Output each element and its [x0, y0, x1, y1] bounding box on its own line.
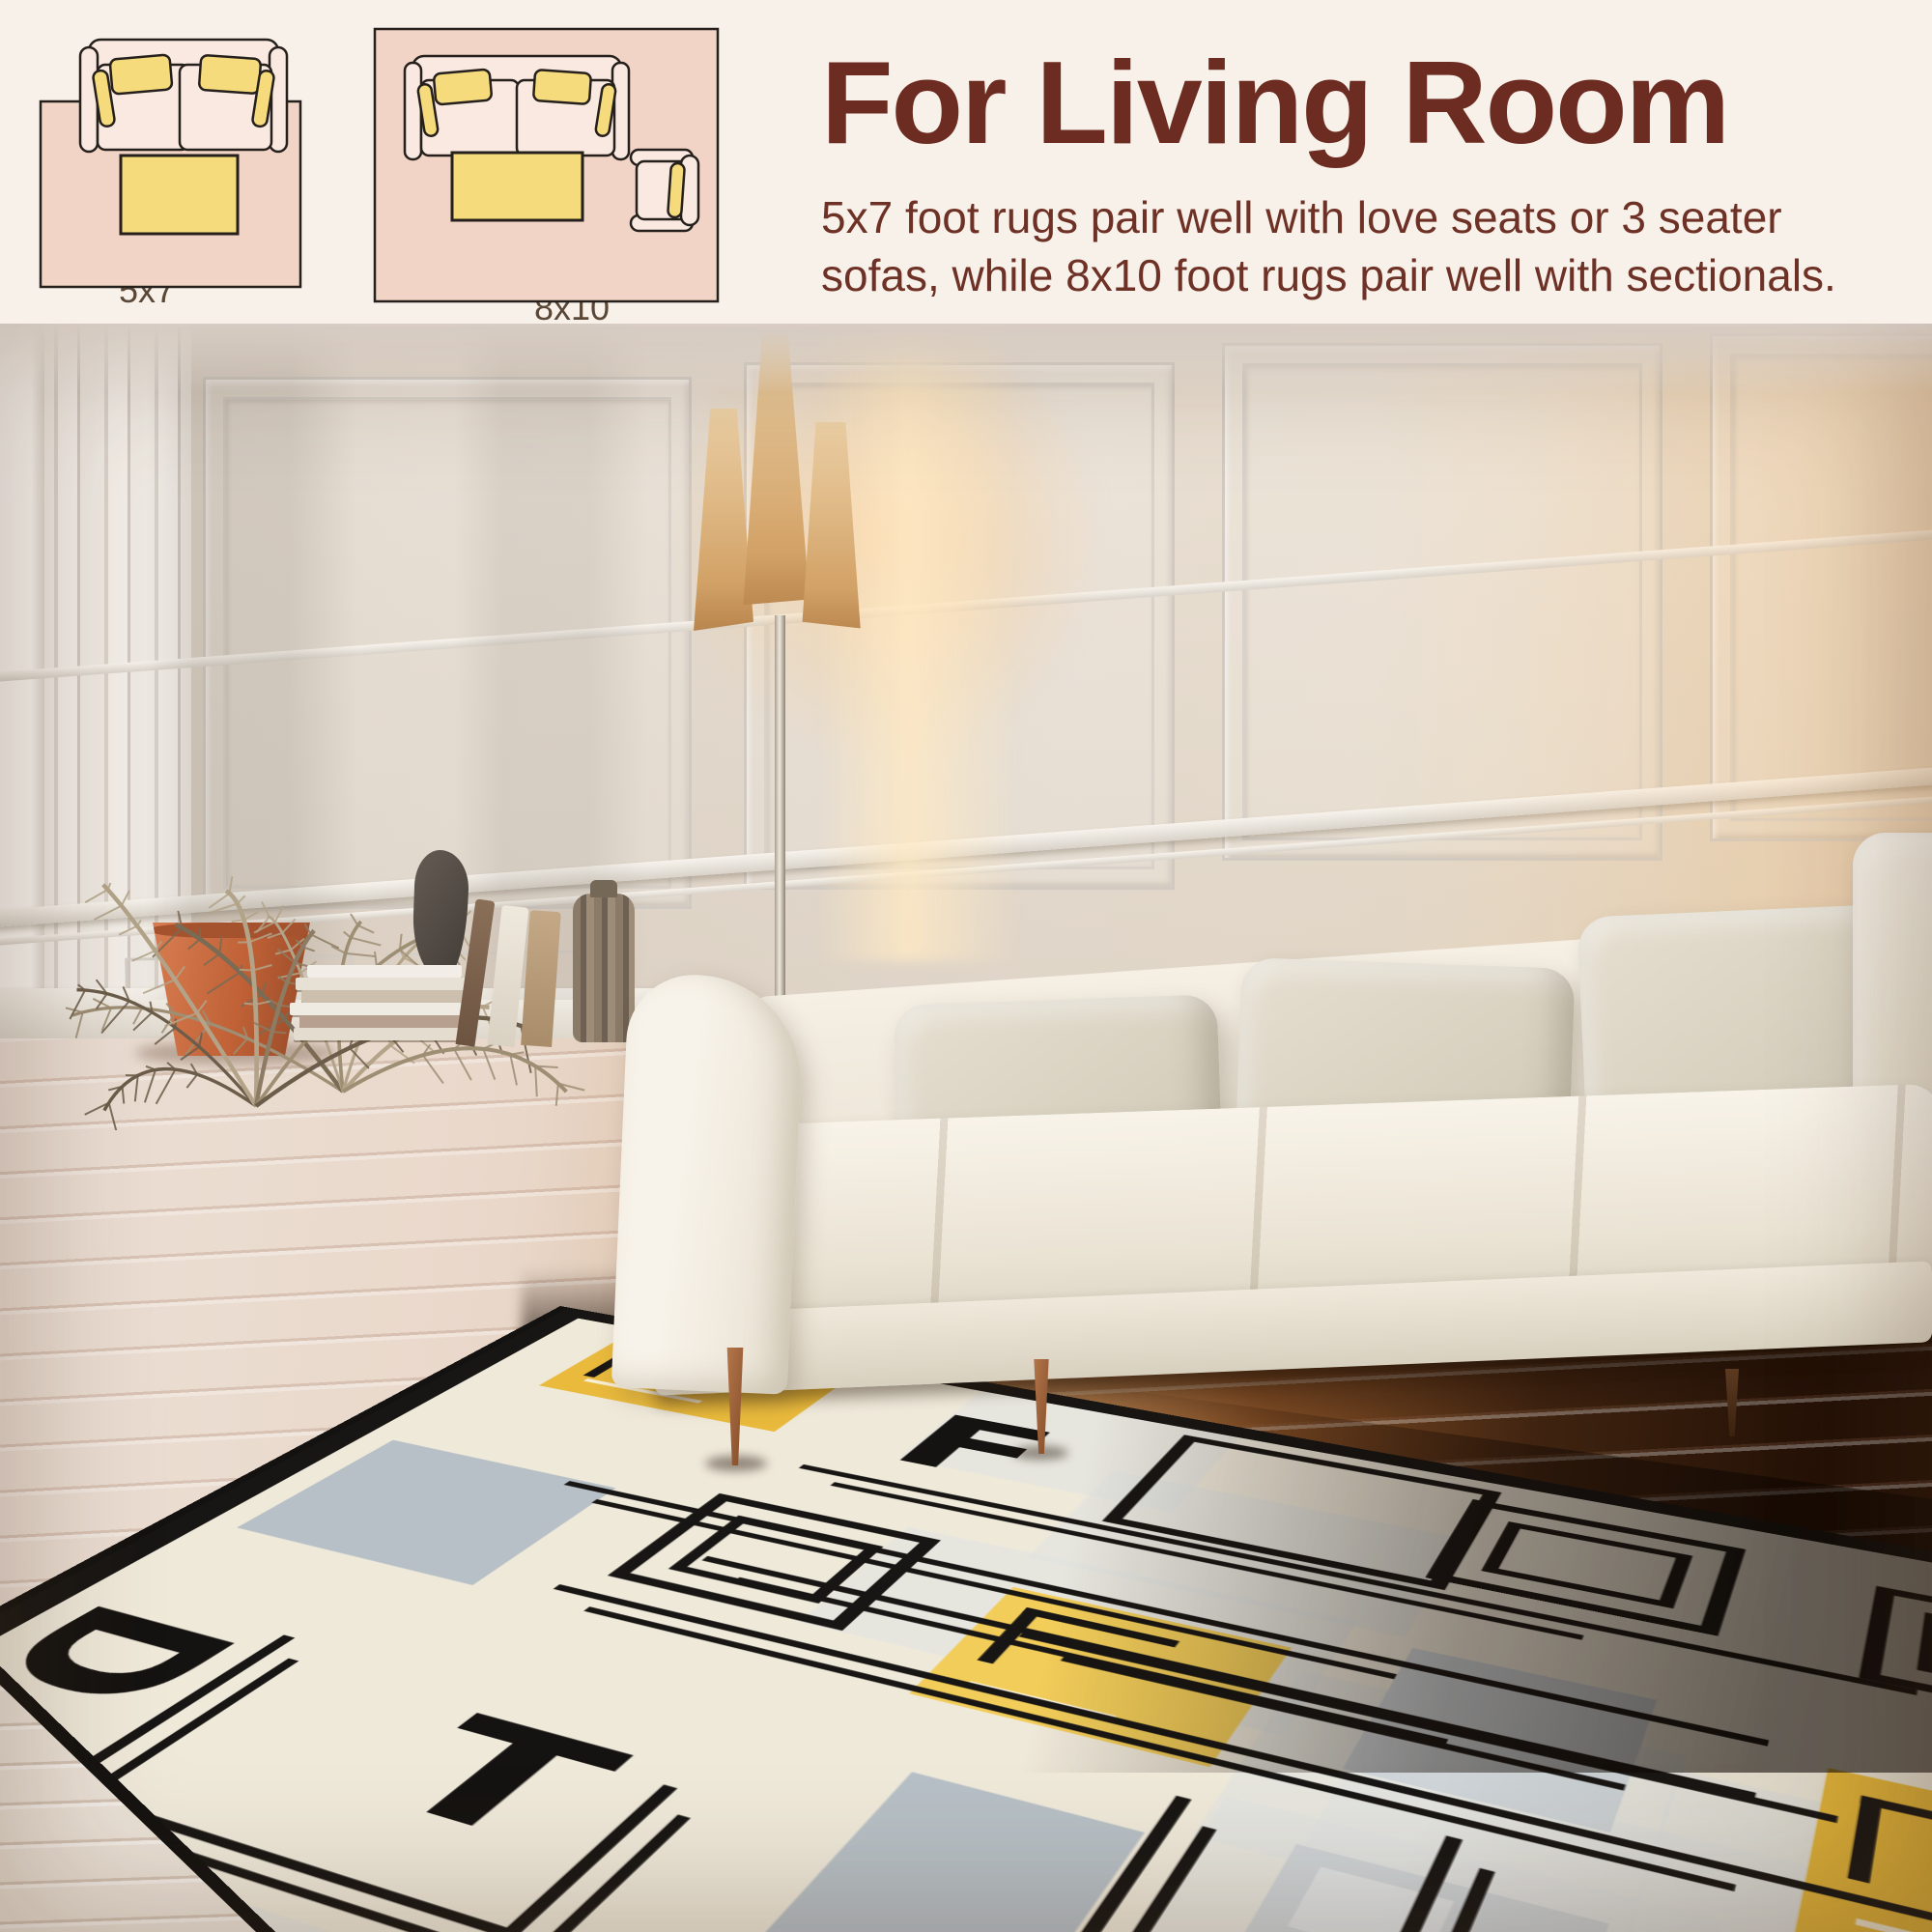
diagram-coffee-table: [452, 153, 582, 220]
diagram-8x10: [375, 29, 718, 301]
living-room-photo: FDDTTJ: [0, 324, 1932, 1932]
diagram-coffee-table: [121, 156, 238, 234]
book-stack: [290, 965, 483, 1044]
diagram-5x7: [41, 40, 300, 287]
product-infographic: 5x7 8x10 For Living Room 5x7 foot rugs p…: [0, 0, 1932, 1932]
description-line-2: sofas, while 8x10 foot rugs pair well wi…: [821, 247, 1932, 305]
lamp-pole: [775, 615, 785, 1002]
rug-size-diagrams: [0, 0, 773, 343]
page-title: For Living Room: [821, 41, 1932, 164]
wall-panel: [1222, 343, 1662, 861]
copy-block: For Living Room 5x7 foot rugs pair well …: [821, 27, 1932, 305]
vase: [573, 894, 635, 1042]
description-line-1: 5x7 foot rugs pair well with love seats …: [821, 189, 1932, 247]
diagram-sofa-topview: [405, 56, 629, 159]
diagram-sofa-topview: [80, 40, 287, 152]
sofa-armrest: [611, 972, 806, 1395]
wall-panel: [1710, 333, 1932, 841]
lamp-shade: [800, 422, 862, 635]
diagram-armchair: [631, 150, 698, 231]
dried-palm-plant: [0, 609, 667, 1130]
